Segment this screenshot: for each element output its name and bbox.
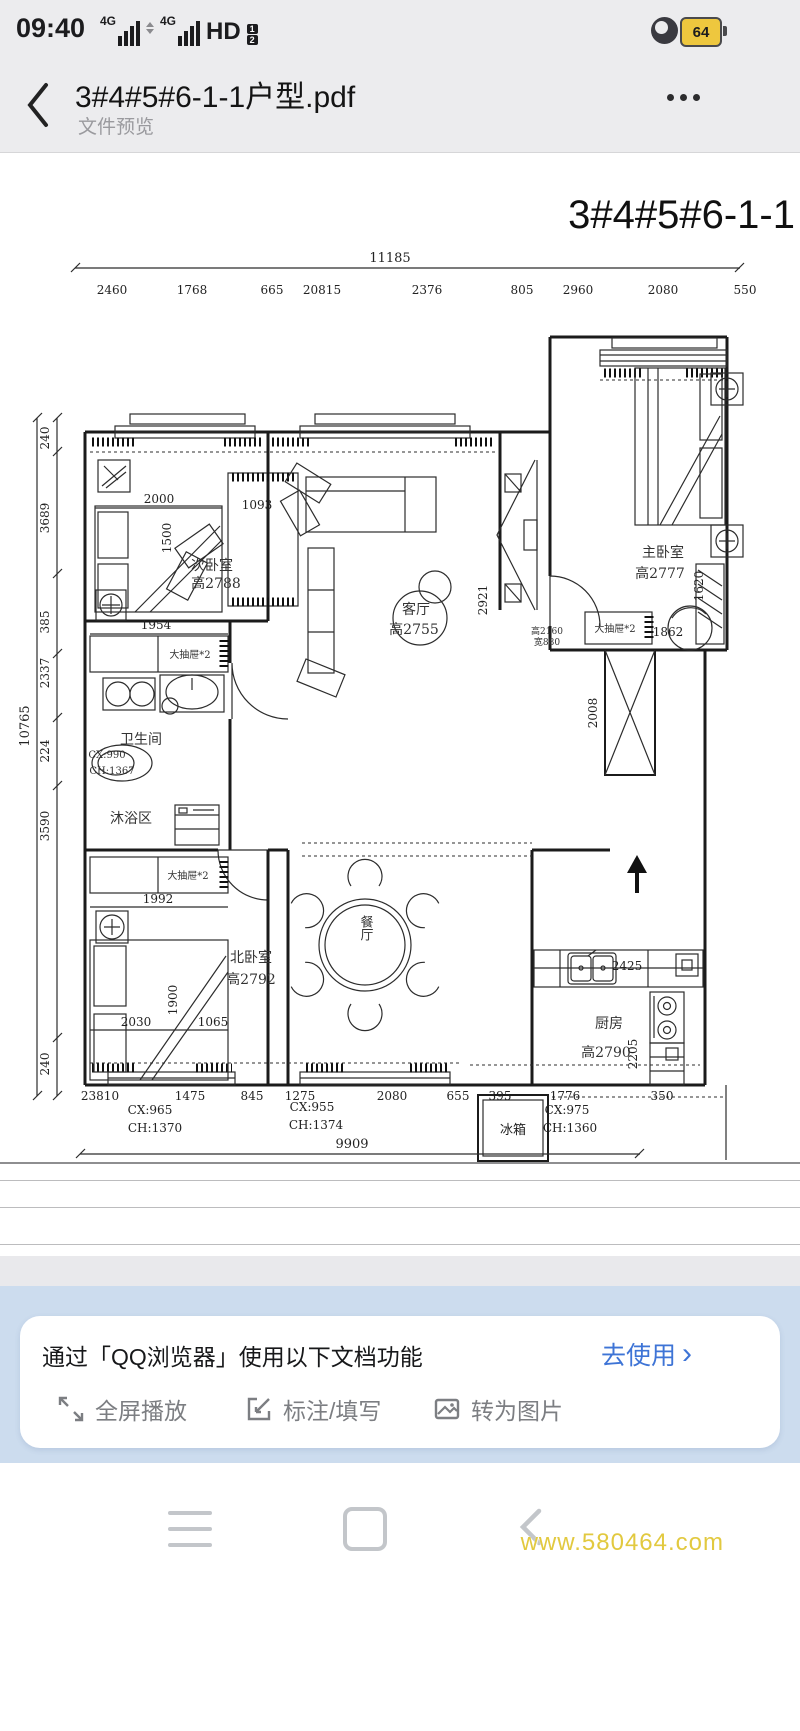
file-title: 3#4#5#6-1-1户型.pdf <box>75 72 355 116</box>
svg-text:大抽屉*2: 大抽屉*2 <box>594 622 635 635</box>
svg-text:845: 845 <box>241 1089 264 1103</box>
svg-text:550: 550 <box>734 283 757 297</box>
room-label-kitchen: 厨房 <box>595 1016 623 1032</box>
room-label-living: 客厅 <box>402 601 430 618</box>
svg-text:3590: 3590 <box>38 811 52 842</box>
svg-text:2030: 2030 <box>121 1015 152 1029</box>
use-now-button[interactable]: 去使用 › <box>601 1336 692 1372</box>
convert-image-button[interactable]: 转为图片 <box>432 1392 563 1426</box>
qq-browser-promo: 通过「QQ浏览器」使用以下文档功能 去使用 › 全屏播放 标注/填写 <box>0 1286 800 1463</box>
floor-plan: 3#4#5#6-1-1 11185 2460 1768 665 20815 23… <box>0 166 800 1162</box>
separator <box>0 1244 800 1245</box>
svg-text:高2788: 高2788 <box>191 575 241 592</box>
svg-text:2425: 2425 <box>612 959 643 973</box>
svg-text:宽880: 宽880 <box>534 636 560 648</box>
room-label-second-bedroom: 次卧室 <box>191 557 233 574</box>
signal-bars-icon <box>178 21 200 46</box>
svg-text:240: 240 <box>38 427 52 450</box>
svg-text:高2790: 高2790 <box>581 1044 631 1061</box>
svg-text:805: 805 <box>511 283 534 297</box>
page-edge <box>0 1162 800 1164</box>
svg-text:240: 240 <box>38 1053 52 1076</box>
promo-message: 通过「QQ浏览器」使用以下文档功能 <box>42 1338 423 1372</box>
svg-text:2008: 2008 <box>586 698 600 729</box>
pdf-page[interactable]: 3#4#5#6-1-1 11185 2460 1768 665 20815 23… <box>0 153 800 1162</box>
svg-text:CX:955: CX:955 <box>290 1100 335 1114</box>
dual-sim-icon: 1 2 <box>247 24 258 45</box>
svg-text:2376: 2376 <box>412 283 443 297</box>
room-label-master: 主卧室 <box>642 544 684 561</box>
battery-icon: 64 <box>680 17 722 47</box>
svg-text:1776: 1776 <box>550 1089 581 1103</box>
preview-label: 文件预览 <box>78 112 154 139</box>
fullscreen-icon <box>56 1394 86 1424</box>
svg-text:350: 350 <box>651 1089 674 1103</box>
svg-text:1862: 1862 <box>653 625 684 639</box>
dim-bottom-total: 9909 <box>335 1137 368 1152</box>
svg-text:大抽屉*2: 大抽屉*2 <box>167 869 208 882</box>
svg-text:395: 395 <box>489 1089 512 1103</box>
svg-text:2080: 2080 <box>377 1089 408 1103</box>
eye-protection-icon <box>651 17 678 44</box>
svg-text:385: 385 <box>38 611 52 634</box>
north-arrow-icon <box>627 855 647 873</box>
dim-left-total: 10765 <box>18 705 33 746</box>
svg-text:2000: 2000 <box>144 492 175 506</box>
file-preview-header: 3#4#5#6-1-1户型.pdf 文件预览 <box>0 60 800 152</box>
promo-card: 通过「QQ浏览器」使用以下文档功能 去使用 › 全屏播放 标注/填写 <box>20 1316 780 1448</box>
pen-edit-icon <box>244 1394 274 1424</box>
svg-text:1475: 1475 <box>175 1089 206 1103</box>
svg-text:CH:1374: CH:1374 <box>289 1118 344 1132</box>
clock: 09:40 <box>16 13 85 44</box>
menu-button[interactable] <box>168 1511 212 1547</box>
svg-text:3689: 3689 <box>38 503 52 534</box>
system-nav-bar: www.580464.com <box>0 1463 800 1731</box>
svg-text:20815: 20815 <box>303 283 341 297</box>
label-fridge: 冰箱 <box>500 1122 526 1138</box>
svg-text:1900: 1900 <box>166 985 180 1016</box>
signal-icon-sim1: 4G <box>100 14 140 48</box>
data-arrows-icon <box>146 22 154 34</box>
plan-title: 3#4#5#6-1-1 <box>568 193 795 237</box>
separator <box>0 1180 800 1181</box>
annotate-fill-button[interactable]: 标注/填写 <box>244 1392 381 1426</box>
svg-text:2080: 2080 <box>648 283 679 297</box>
svg-text:1954: 1954 <box>141 618 172 632</box>
signal-bars-icon <box>118 21 140 46</box>
svg-text:1620: 1620 <box>692 571 706 602</box>
svg-text:CH:1360: CH:1360 <box>543 1121 597 1135</box>
svg-text:大抽屉*2: 大抽屉*2 <box>169 648 210 661</box>
svg-text:高2777: 高2777 <box>635 565 685 582</box>
svg-text:2460: 2460 <box>97 283 128 297</box>
gray-band <box>0 1256 800 1286</box>
svg-text:2337: 2337 <box>38 658 52 689</box>
svg-text:1768: 1768 <box>177 283 208 297</box>
chevron-right-icon: › <box>682 1341 692 1367</box>
fullscreen-play-button[interactable]: 全屏播放 <box>56 1392 187 1426</box>
svg-text:23810: 23810 <box>81 1089 119 1103</box>
status-bar: 09:40 4G 4G HD 1 2 64 <box>0 0 800 60</box>
svg-text:1065: 1065 <box>198 1015 229 1029</box>
image-icon <box>432 1394 462 1424</box>
svg-text:高2755: 高2755 <box>389 621 439 638</box>
svg-text:2960: 2960 <box>563 283 594 297</box>
dim-top-total: 11185 <box>369 251 410 266</box>
separator <box>0 1207 800 1208</box>
svg-text:高2792: 高2792 <box>226 971 276 988</box>
svg-text:665: 665 <box>261 283 284 297</box>
room-label-dining: 餐厅 <box>358 914 374 941</box>
back-button[interactable] <box>22 80 52 130</box>
svg-text:1500: 1500 <box>160 523 174 554</box>
phone-screen: 09:40 4G 4G HD 1 2 64 <box>0 0 800 1731</box>
svg-text:224: 224 <box>38 739 52 762</box>
signal-icon-sim2: 4G <box>160 14 200 48</box>
more-options-button[interactable] <box>667 94 700 101</box>
home-button[interactable] <box>343 1507 387 1551</box>
svg-text:CX:965: CX:965 <box>128 1103 173 1117</box>
signal-cluster: 4G 4G HD 1 2 <box>100 12 258 48</box>
watermark: www.580464.com <box>521 1529 724 1557</box>
svg-text:1093: 1093 <box>242 498 273 512</box>
room-label-north-bedroom: 北卧室 <box>230 949 272 966</box>
svg-text:655: 655 <box>447 1089 470 1103</box>
room-label-shower: 沐浴区 <box>110 811 152 827</box>
svg-text:2921: 2921 <box>476 585 490 616</box>
battery-percent: 64 <box>693 24 710 41</box>
svg-text:2205: 2205 <box>626 1039 640 1070</box>
svg-text:1992: 1992 <box>143 892 174 906</box>
svg-text:CX:975: CX:975 <box>545 1103 590 1117</box>
svg-text:CH:1370: CH:1370 <box>128 1121 182 1135</box>
svg-text:高2160: 高2160 <box>531 625 563 637</box>
hd-volte-icon: HD <box>206 18 241 46</box>
